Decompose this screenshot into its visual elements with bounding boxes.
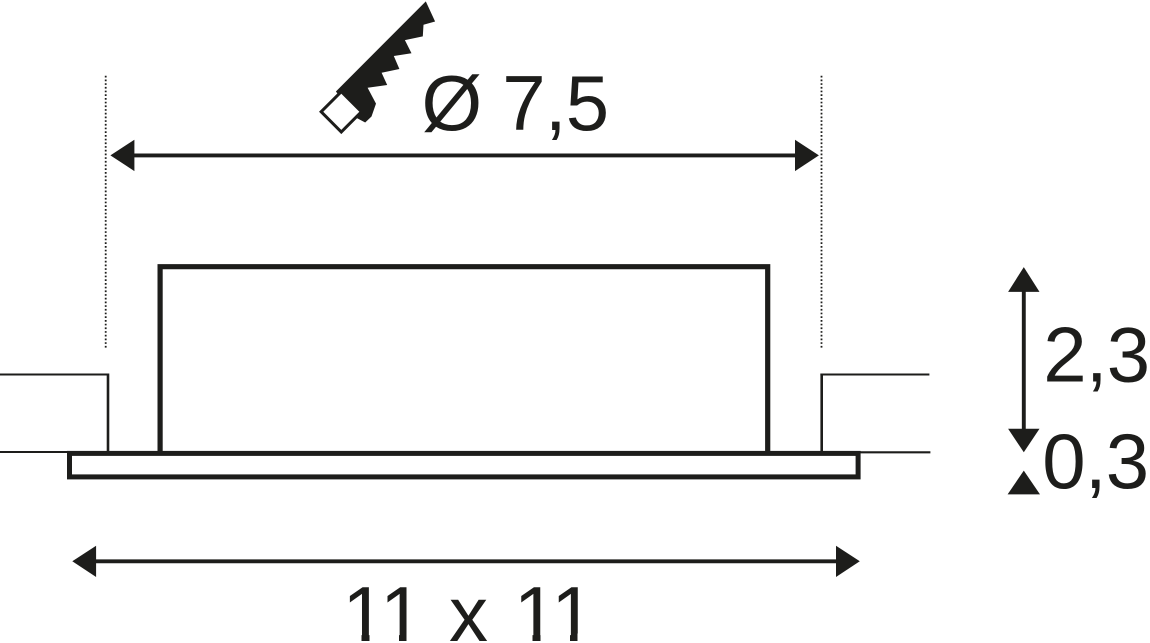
svg-text:Ø 7,5: Ø 7,5 (422, 59, 609, 147)
svg-text:11 x 11: 11 x 11 (342, 570, 594, 643)
svg-text:0,3: 0,3 (1042, 417, 1148, 505)
svg-text:2,3: 2,3 (1043, 311, 1149, 399)
